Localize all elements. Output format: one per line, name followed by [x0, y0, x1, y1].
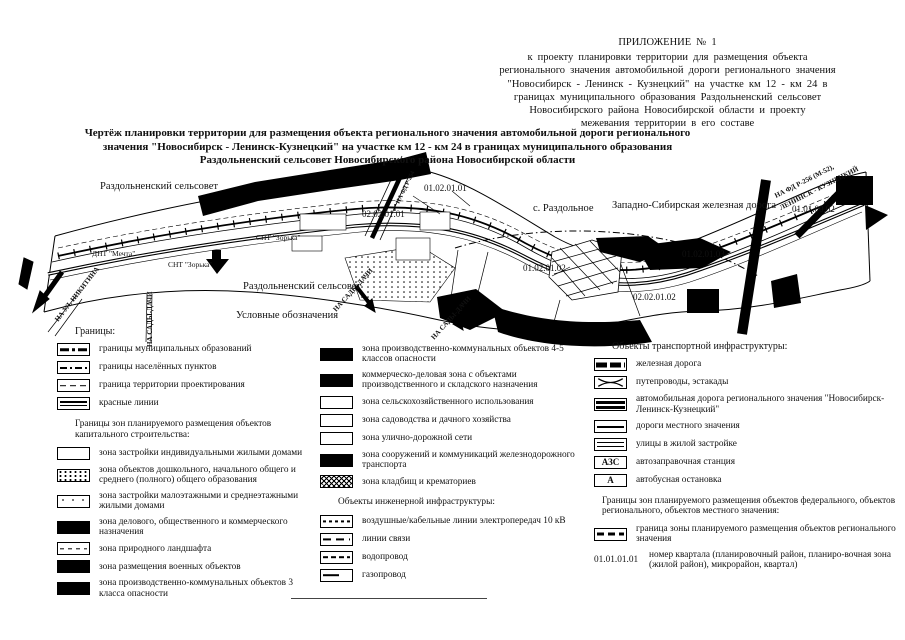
legend-row: граница территории проектирования [57, 379, 320, 392]
legend-column-borders: Границы: границы муниципальных образован… [57, 326, 320, 604]
map-label-q-02020101: 02.02.01.01 [362, 209, 405, 219]
header-line: Новосибирского района Новосибирской обла… [435, 104, 900, 117]
residential-street-swatch [594, 438, 627, 451]
rail-transport-zone-swatch [320, 454, 353, 467]
gas-line-swatch [320, 569, 353, 582]
legend-label: коммерческо-деловая зона с объектами про… [362, 370, 590, 391]
legend-label: зона сооружений и коммуникаций железнодо… [362, 450, 590, 471]
military-zone-swatch [57, 560, 90, 573]
local-road-swatch [594, 420, 627, 433]
legend-row: АЗС автозаправочная станция [594, 456, 900, 469]
legend-row: красные линии [57, 397, 320, 410]
legend-label: красные линии [99, 398, 320, 408]
legend-label: границы населённых пунктов [99, 362, 320, 372]
legend-column-zones: зона производственно-коммунальных объект… [320, 344, 590, 587]
natural-landscape-swatch [57, 542, 90, 555]
map-label-sovet-1: Раздольненский сельсовет [100, 181, 218, 192]
title-line: Раздольненский сельсовет Новосибирского … [30, 154, 745, 168]
legend-row: зона сооружений и коммуникаций железнодо… [320, 450, 590, 471]
map-label-q-01010002: 01.01.00.02 [792, 204, 835, 214]
map-label-q-01020103: 01.02.01.03 [682, 249, 725, 259]
legend-row: граница зоны планируемого размещения объ… [594, 524, 900, 545]
legend-label: зона застройки малоэтажными и среднеэтаж… [99, 491, 320, 512]
quarter-number: 01.01.01.01 [594, 555, 640, 565]
header-line: границах муниципального образования Разд… [435, 91, 900, 104]
arrow-west-icon [19, 258, 62, 312]
gas-station-swatch: АЗС [594, 456, 627, 469]
engineering-heading: Объекты инженерной инфраструктуры: [338, 497, 590, 507]
legend-row: А автобусная остановка [594, 474, 900, 487]
map-label-q-01020101: 01.02.01.01 [424, 183, 467, 193]
power-lines-swatch [320, 515, 353, 528]
map-label-razdolnoe: с. Раздольное [533, 203, 594, 214]
legend-row: зона садоводства и дачного хозяйства [320, 414, 590, 427]
appendix-title: ПРИЛОЖЕНИЕ № 1 [435, 36, 900, 49]
federal-heading: Границы зон планируемого размещения объе… [602, 496, 900, 517]
legend-row: зона делового, общественного и коммерчес… [57, 517, 320, 538]
map-label-q-01020102: 01.02.01.02 [523, 263, 566, 273]
settlement-boundary-swatch [57, 361, 90, 374]
legend-label: зона производственно-коммунальных объект… [99, 578, 320, 599]
comm-lines-swatch [320, 533, 353, 546]
header-line: к проекту планировки территории для разм… [435, 51, 900, 64]
legend-row: улицы в жилой застройке [594, 438, 900, 451]
legend-row: зона сельскохозяйственного использования [320, 396, 590, 409]
regional-road-swatch [594, 398, 627, 411]
individual-housing-swatch [57, 447, 90, 460]
overpass-swatch [594, 376, 627, 389]
legend-row: зона производственно-коммунальных объект… [320, 344, 590, 365]
regional-road [48, 204, 864, 284]
legend-label: граница территории проектирования [99, 380, 320, 390]
legend-label: зона объектов дошкольного, начального об… [99, 465, 320, 486]
municipal-boundary-swatch [57, 343, 90, 356]
street-network-swatch [320, 432, 353, 445]
arrow-east-icon [865, 205, 888, 230]
legend-row: границы муниципальных образований [57, 343, 320, 356]
legend-label: улицы в жилой застройке [636, 439, 900, 449]
legend-label: дороги местного значения [636, 421, 900, 431]
legend-row: путепроводы, эстакады [594, 376, 900, 389]
legend-label: граница зоны планируемого размещения объ… [636, 524, 900, 545]
capital-zones-heading: Границы зон планируемого размещения объе… [75, 419, 320, 440]
legend-label: водопровод [362, 552, 590, 562]
legend-label: путепроводы, эстакады [636, 377, 900, 387]
legend-row: коммерческо-деловая зона с объектами про… [320, 370, 590, 391]
legend-row: воздушные/кабельные линии электропередач… [320, 515, 590, 528]
legend-label: зона улично-дорожной сети [362, 433, 590, 443]
legend-row: границы населённых пунктов [57, 361, 320, 374]
borders-heading: Границы: [75, 326, 320, 337]
legend-label: газопровод [362, 570, 590, 580]
industrial-class45-swatch [320, 348, 353, 361]
bus-stop-swatch: А [594, 474, 627, 487]
legend-row: зона застройки малоэтажными и среднеэтаж… [57, 491, 320, 512]
map-label-snt-zorka-1: СНТ "Зорька" [168, 260, 213, 269]
legend-row: водопровод [320, 551, 590, 564]
legend-row: газопровод [320, 569, 590, 582]
map-label-dnt-mechta: ДНТ "Мечта" [92, 249, 135, 258]
gardening-zone-swatch [320, 414, 353, 427]
legend-row: зона кладбищ и крематориев [320, 475, 590, 488]
legend-label: зона производственно-коммунальных объект… [362, 344, 590, 365]
header-line: "Новосибирск - Ленинск - Кузнецкий" на у… [435, 78, 900, 91]
water-line-swatch [320, 551, 353, 564]
agricultural-zone-swatch [320, 396, 353, 409]
legend-row: дороги местного значения [594, 420, 900, 433]
legend-row: 01.01.01.01 номер квартала (планировочны… [594, 550, 900, 571]
map-label-railway: Западно-Сибирская железная дорога [612, 200, 776, 211]
header-line: регионального значения автомобильной дор… [435, 64, 900, 77]
legend-label: зона природного ландшафта [99, 544, 320, 554]
legend-row: зона размещения военных объектов [57, 560, 320, 573]
legend-label: автобусная остановка [636, 475, 900, 485]
project-boundary-swatch [57, 379, 90, 392]
commercial-warehouse-swatch [320, 374, 353, 387]
page-title: Чертёж планировки территории для размеще… [30, 127, 745, 168]
legend-label: автомобильная дорога регионального значе… [636, 394, 900, 415]
legend-label: железная дорога [636, 359, 900, 369]
transport-heading: Объекты транспортной инфраструктуры: [612, 341, 900, 352]
map-label-q-02020102: 02.02.01.02 [633, 292, 676, 302]
legend-row: зона улично-дорожной сети [320, 432, 590, 445]
map-label-snt-zorka-2: СНТ "Зорька" [256, 233, 301, 242]
legend-label: зона кладбищ и крематориев [362, 477, 590, 487]
legend-label: линии связи [362, 534, 590, 544]
education-zone-swatch [57, 469, 90, 482]
business-zone-swatch [57, 521, 90, 534]
cemetery-zone-swatch [320, 475, 353, 488]
plan-sheet: Раздольненский сельсовет Раздольненский … [0, 0, 905, 640]
legend-row: зона объектов дошкольного, начального об… [57, 465, 320, 486]
legend-label: воздушные/кабельные линии электропередач… [362, 516, 590, 526]
legend-label: границы муниципальных образований [99, 344, 320, 354]
legend-label: зона делового, общественного и коммерчес… [99, 517, 320, 538]
legend-label: зона сельскохозяйственного использования [362, 397, 590, 407]
legend-label: зона застройки индивидуальными жилыми до… [99, 448, 320, 458]
legend-column-transport: Объекты транспортной инфраструктуры: жел… [594, 341, 900, 575]
legend-row: автомобильная дорога регионального значе… [594, 394, 900, 415]
legend-label: автозаправочная станция [636, 457, 900, 467]
header-block: ПРИЛОЖЕНИЕ № 1 к проекту планировки терр… [435, 36, 900, 130]
legend-row: зона производственно-коммунальных объект… [57, 578, 320, 599]
legend-heading: Условные обозначения [222, 310, 352, 321]
legend-row: зона природного ландшафта [57, 542, 320, 555]
title-line: значения "Новосибирск - Ленинск-Кузнецки… [30, 141, 745, 155]
legend-row: линии связи [320, 533, 590, 546]
industrial-class3-swatch [57, 582, 90, 595]
railroad-swatch [594, 358, 627, 371]
regional-placement-boundary-swatch [594, 528, 627, 541]
midrise-housing-swatch [57, 495, 90, 508]
legend-label: зона размещения военных объектов [99, 562, 320, 572]
legend-row: железная дорога [594, 358, 900, 371]
legend-label: номер квартала (планировочный район, пла… [649, 550, 900, 571]
legend-label: зона садоводства и дачного хозяйства [362, 415, 590, 425]
title-line: Чертёж планировки территории для размеще… [30, 127, 745, 141]
map-label-sovet-2: Раздольненский сельсовет [243, 281, 361, 292]
legend-row: зона застройки индивидуальными жилыми до… [57, 447, 320, 460]
bottom-divider [291, 598, 487, 599]
red-lines-swatch [57, 397, 90, 410]
